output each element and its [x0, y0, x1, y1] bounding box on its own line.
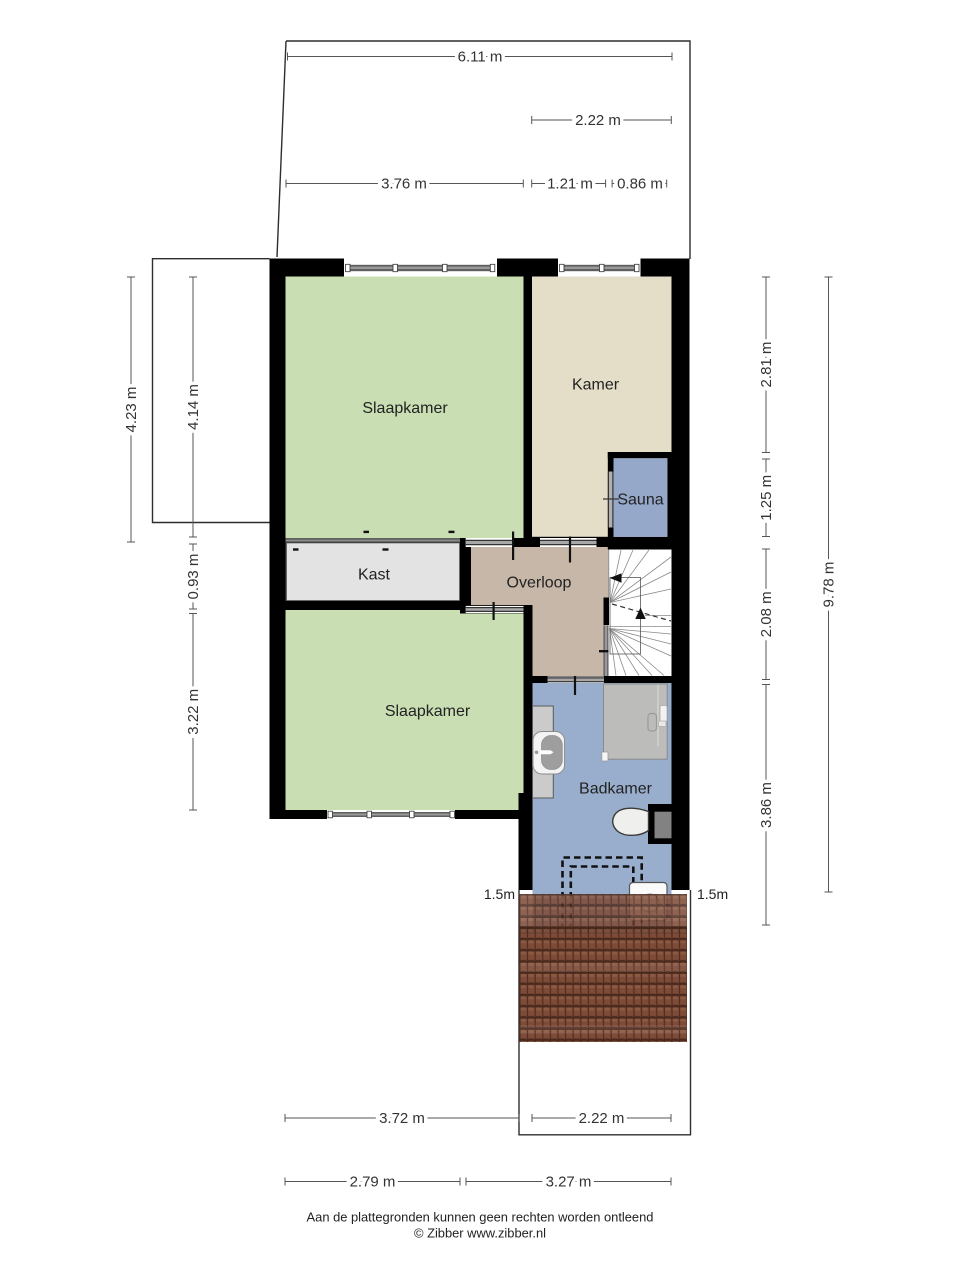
svg-text:9.78 m: 9.78 m [821, 562, 838, 608]
svg-text:Badkamer: Badkamer [579, 781, 653, 798]
svg-text:Slaapkamer: Slaapkamer [385, 703, 471, 720]
svg-text:2.81 m: 2.81 m [758, 342, 775, 388]
svg-text:4.23 m: 4.23 m [123, 387, 140, 433]
svg-text:3.76 m: 3.76 m [381, 176, 427, 193]
svg-text:0.93 m: 0.93 m [185, 554, 202, 600]
svg-text:1.25 m: 1.25 m [758, 475, 775, 521]
svg-text:Kamer: Kamer [572, 377, 620, 394]
svg-text:3.86 m: 3.86 m [758, 782, 775, 828]
svg-text:2.22 m: 2.22 m [575, 112, 621, 129]
svg-text:2.79 m: 2.79 m [350, 1174, 396, 1191]
svg-text:3.27 m: 3.27 m [546, 1174, 592, 1191]
svg-text:Overloop: Overloop [507, 575, 572, 592]
svg-text:0.86 m: 0.86 m [617, 176, 663, 193]
svg-text:4.14 m: 4.14 m [185, 384, 202, 430]
svg-text:1.21 m: 1.21 m [547, 176, 593, 193]
svg-text:2.08 m: 2.08 m [758, 591, 775, 637]
svg-text:1.5m: 1.5m [697, 886, 728, 902]
svg-text:2.22 m: 2.22 m [579, 1110, 625, 1127]
svg-text:© Zibber www.zibber.nl: © Zibber www.zibber.nl [414, 1226, 546, 1241]
svg-text:Aan de plattegronden kunnen ge: Aan de plattegronden kunnen geen rechten… [307, 1210, 654, 1225]
svg-text:3.72 m: 3.72 m [379, 1110, 425, 1127]
svg-text:6.11 m: 6.11 m [458, 49, 503, 66]
svg-text:3.22 m: 3.22 m [185, 689, 202, 735]
svg-text:1.5m: 1.5m [484, 886, 515, 902]
svg-text:Sauna: Sauna [617, 492, 663, 509]
svg-text:Slaapkamer: Slaapkamer [362, 400, 448, 417]
svg-text:Kast: Kast [358, 567, 391, 584]
